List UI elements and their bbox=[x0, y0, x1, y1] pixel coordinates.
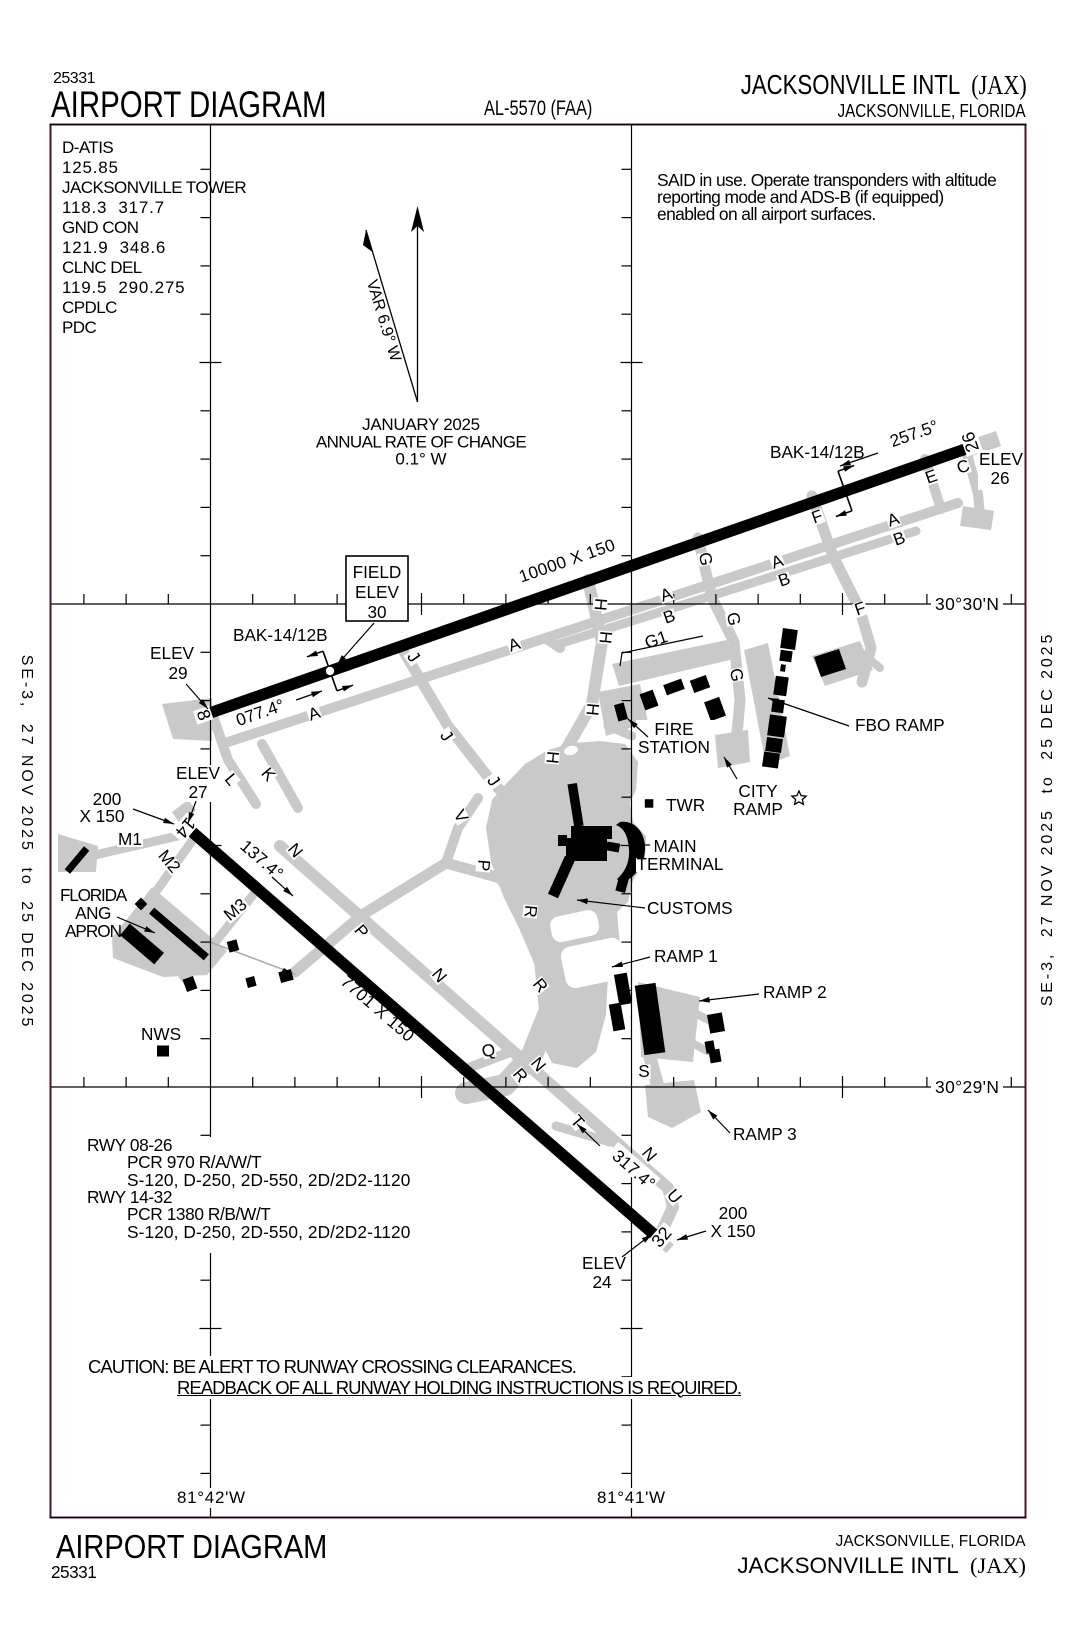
svg-text:FLORIDA: FLORIDA bbox=[60, 885, 128, 905]
svg-text:X 150: X 150 bbox=[80, 806, 125, 826]
svg-text:NWS: NWS bbox=[141, 1024, 181, 1044]
svg-text:FBO RAMP: FBO RAMP bbox=[855, 715, 945, 735]
svg-text:JANUARY 2025: JANUARY 2025 bbox=[362, 415, 480, 434]
svg-text:M1: M1 bbox=[118, 829, 142, 849]
svg-text:ELEV: ELEV bbox=[582, 1253, 626, 1273]
svg-text:G: G bbox=[695, 551, 717, 568]
svg-text:7701 X 150: 7701 X 150 bbox=[337, 972, 418, 1046]
svg-text:APRON: APRON bbox=[65, 921, 122, 941]
svg-text:FIELD: FIELD bbox=[353, 562, 402, 582]
svg-text:MAIN: MAIN bbox=[654, 836, 697, 856]
svg-text:G: G bbox=[723, 611, 745, 628]
svg-text:RAMP 3: RAMP 3 bbox=[733, 1124, 797, 1144]
svg-text:24: 24 bbox=[592, 1272, 612, 1292]
svg-text:30°29'N: 30°29'N bbox=[935, 1077, 999, 1097]
svg-text:TWR: TWR bbox=[666, 795, 705, 815]
svg-text:H: H bbox=[582, 702, 603, 716]
svg-text:S: S bbox=[638, 1061, 649, 1081]
svg-text:ELEV: ELEV bbox=[176, 763, 220, 783]
svg-text:TERMINAL: TERMINAL bbox=[637, 854, 724, 874]
svg-text:RAMP 1: RAMP 1 bbox=[654, 946, 718, 966]
svg-text:ANG: ANG bbox=[75, 903, 111, 923]
svg-text:30°30'N: 30°30'N bbox=[935, 594, 999, 614]
svg-text:VAR 6.9° W: VAR 6.9° W bbox=[363, 278, 404, 365]
svg-text:FIRE: FIRE bbox=[654, 719, 693, 739]
svg-text:0.1° W: 0.1° W bbox=[395, 450, 446, 469]
svg-text:BAK-14/12B: BAK-14/12B bbox=[233, 625, 328, 645]
svg-text:29: 29 bbox=[168, 663, 187, 683]
svg-text:27: 27 bbox=[188, 782, 207, 802]
svg-text:H: H bbox=[542, 750, 563, 764]
svg-text:ELEV: ELEV bbox=[150, 643, 194, 663]
svg-text:STATION: STATION bbox=[638, 737, 710, 757]
svg-text:30: 30 bbox=[367, 602, 386, 622]
svg-text:ELEV: ELEV bbox=[979, 449, 1023, 469]
svg-text:26: 26 bbox=[990, 468, 1009, 488]
svg-text:BAK-14/12B: BAK-14/12B bbox=[770, 442, 865, 462]
svg-text:RAMP: RAMP bbox=[733, 799, 783, 819]
svg-text:G: G bbox=[726, 667, 748, 684]
svg-text:H: H bbox=[595, 630, 616, 644]
svg-text:ELEV: ELEV bbox=[355, 582, 399, 602]
svg-text:R: R bbox=[520, 904, 541, 918]
svg-text:RAMP 2: RAMP 2 bbox=[763, 982, 827, 1002]
svg-text:H: H bbox=[590, 597, 611, 611]
svg-text:X 150: X 150 bbox=[711, 1221, 756, 1241]
svg-text:P: P bbox=[474, 859, 495, 872]
svg-text:257.5°: 257.5° bbox=[887, 416, 941, 451]
svg-text:200: 200 bbox=[719, 1203, 748, 1223]
svg-text:CITY: CITY bbox=[738, 781, 778, 801]
svg-text:CUSTOMS: CUSTOMS bbox=[647, 898, 733, 918]
